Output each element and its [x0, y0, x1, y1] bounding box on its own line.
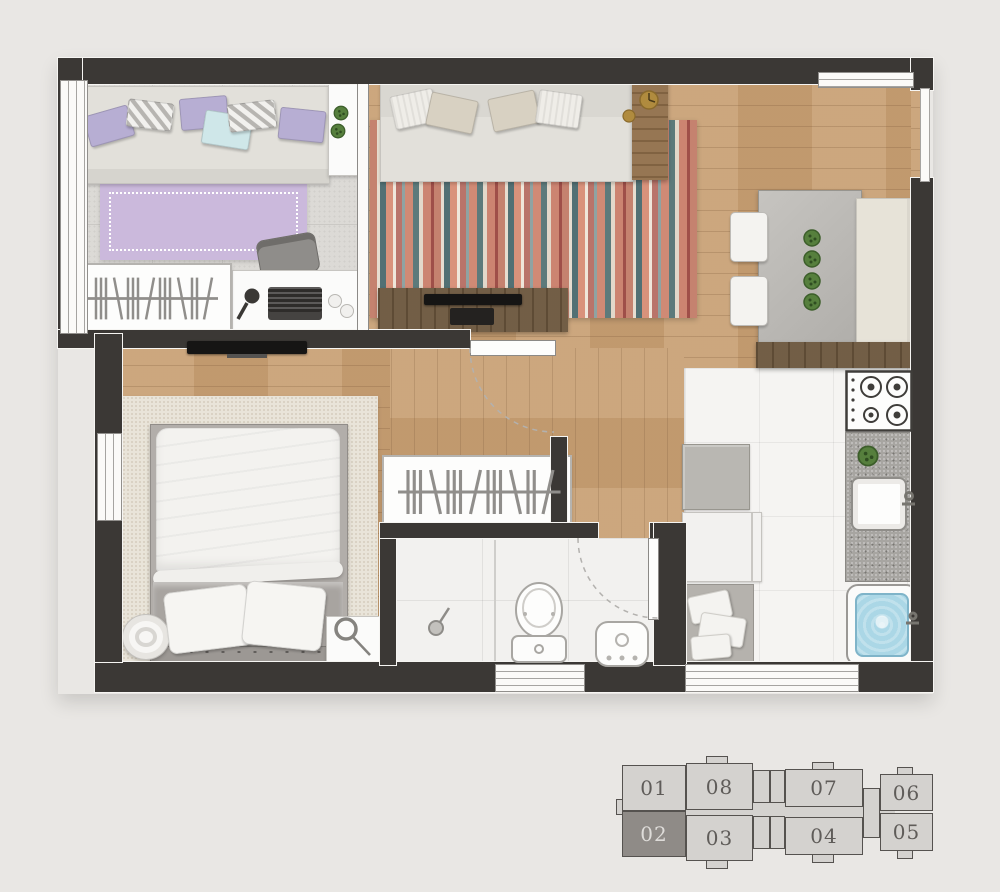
- keyplan-unit-06-label: 06: [893, 781, 920, 805]
- laptop-on-desk: [268, 287, 322, 320]
- keyplan-neck: [863, 788, 880, 838]
- office-pillow-chevron-2: [226, 99, 277, 133]
- refrigerator-door-line: [751, 513, 753, 581]
- bedroom-tv: [187, 341, 307, 354]
- wall-right-top: [911, 58, 933, 90]
- laundry-tub: [846, 584, 918, 666]
- dining-table: [758, 190, 862, 344]
- sideboard: [756, 342, 913, 368]
- bed-pillow-2: [241, 580, 327, 652]
- floor-plan-page: { "title": "apartment-floor-plan-top-vie…: [0, 0, 1000, 892]
- keyplan-unit-07-label: 07: [810, 776, 837, 800]
- laundry-tub-water: [855, 593, 909, 657]
- shower-divider: [494, 540, 496, 663]
- desk-cup-1: [328, 294, 342, 308]
- wall-bathroom-top: [380, 523, 598, 538]
- keyplan-unit-01[interactable]: 01: [622, 765, 686, 811]
- keyplan-unit-02-label: 02: [640, 822, 667, 846]
- laundry-basket-area: [680, 584, 754, 664]
- keyplan-unit-05[interactable]: 05: [880, 813, 933, 851]
- office-pillow-chevron-1: [125, 98, 174, 131]
- wall-right: [911, 178, 933, 692]
- kitchen-sink: [851, 477, 907, 531]
- office-glass-partition: [357, 84, 369, 330]
- keyplan-core-bottom: [753, 816, 785, 849]
- office-window: [60, 80, 88, 334]
- keyplan-unit-01-label: 01: [640, 776, 667, 800]
- bedroom-tv-stand: [227, 354, 267, 358]
- keyplan-unit-03[interactable]: 03: [686, 815, 753, 861]
- bed-pillow-1: [163, 583, 254, 655]
- keyplan-unit-04[interactable]: 04: [785, 817, 863, 855]
- keyplan-unit-03-label: 03: [706, 826, 733, 850]
- round-tray-side-table: [122, 614, 170, 660]
- bathroom-window: [495, 664, 585, 692]
- bedroom-clothes-rack: [382, 455, 572, 527]
- living-pillow-knit-2: [535, 89, 583, 129]
- office-pillow-lilac-3: [277, 107, 326, 144]
- office-side-table: [328, 84, 360, 176]
- bathroom-tile-floor: [396, 538, 654, 665]
- balcony-opening-trim: [920, 88, 930, 182]
- keyplan-unit-05-label: 05: [893, 820, 920, 844]
- kitchen-cabinet: [682, 444, 750, 510]
- bathroom-door-leaf: [648, 538, 659, 620]
- office-clothes-rack: [78, 263, 232, 332]
- desk-cup-2: [340, 304, 354, 318]
- dining-chair-1: [730, 212, 768, 262]
- bedroom-door-leaf: [470, 340, 556, 356]
- keyplan-unit-04-label: 04: [810, 824, 837, 848]
- dining-window: [818, 72, 914, 88]
- building-keyplan: 01 08 07 06 02 03 04 05: [615, 753, 945, 875]
- media-box: [450, 308, 494, 325]
- living-side-table: [632, 80, 668, 180]
- living-tv: [424, 294, 522, 305]
- kitchen-window: [685, 664, 859, 692]
- bedroom-window: [97, 433, 122, 521]
- keyplan-unit-02-selected[interactable]: 02: [622, 811, 686, 857]
- keyplan-unit-08-label: 08: [706, 775, 733, 799]
- keyplan-unit-08[interactable]: 08: [686, 763, 753, 810]
- towel-3: [690, 633, 732, 660]
- bed-duvet: [156, 428, 340, 572]
- refrigerator: [682, 512, 762, 582]
- keyplan-unit-07[interactable]: 07: [785, 769, 863, 807]
- wall-hall-stub: [551, 437, 567, 525]
- keyplan-unit-06[interactable]: 06: [880, 774, 933, 811]
- wall-top: [58, 58, 933, 84]
- keyplan-core-top: [753, 770, 785, 803]
- dining-bench: [856, 198, 914, 346]
- wall-bathroom-left: [380, 523, 396, 665]
- dining-chair-2: [730, 276, 768, 326]
